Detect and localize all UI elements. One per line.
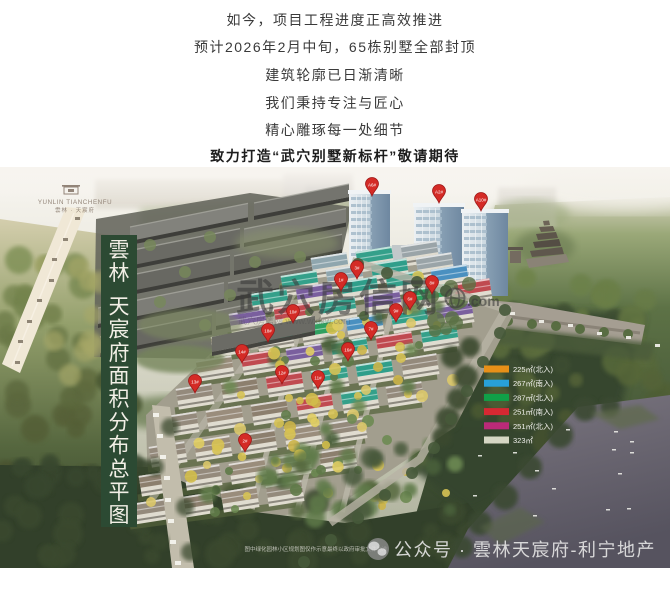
svg-text:3#: 3# (354, 266, 360, 271)
svg-text:12#: 12# (278, 371, 286, 376)
svg-text:287㎡(北入): 287㎡(北入) (513, 393, 554, 402)
svg-text:分: 分 (109, 410, 130, 434)
svg-text:6#: 6# (407, 297, 413, 302)
svg-text:雲林 · 天宸府: 雲林 · 天宸府 (55, 206, 95, 214)
svg-text:总: 总 (109, 457, 130, 481)
svg-text:.com: .com (467, 293, 500, 309)
svg-text:林: 林 (109, 261, 130, 285)
svg-text:10#: 10# (289, 310, 297, 315)
svg-text:323㎡: 323㎡ (513, 436, 534, 445)
svg-text:8#: 8# (429, 281, 435, 286)
svg-text:府: 府 (109, 341, 130, 365)
svg-text:267㎡(南入): 267㎡(南入) (513, 378, 554, 388)
svg-text:雲: 雲 (109, 238, 130, 262)
svg-text:布: 布 (109, 434, 130, 458)
svg-text:面: 面 (109, 364, 130, 388)
svg-text:14#: 14# (238, 350, 246, 355)
svg-text:1#: 1# (338, 278, 344, 283)
svg-text:18#: 18# (264, 329, 272, 334)
svg-text:2#: 2# (242, 439, 248, 444)
svg-text:天: 天 (109, 294, 130, 318)
svg-text:251㎡(北入): 251㎡(北入) (513, 422, 554, 431)
svg-text:7#: 7# (368, 327, 374, 332)
svg-text:A6#: A6# (368, 183, 377, 188)
svg-text:16#: 16# (344, 348, 352, 353)
svg-text:平: 平 (109, 480, 130, 504)
svg-text:公众号 · 雲林天宸府-利宁地产: 公众号 · 雲林天宸府-利宁地产 (394, 540, 656, 560)
svg-text:251㎡(南入): 251㎡(南入) (513, 407, 554, 417)
svg-text:宸: 宸 (109, 318, 130, 342)
svg-text:11#: 11# (314, 376, 322, 381)
svg-text:YUNLIN TIANCHENFU: YUNLIN TIANCHENFU (38, 199, 112, 206)
svg-text:9#: 9# (393, 309, 399, 314)
svg-text:A2#: A2# (435, 190, 444, 195)
svg-text:A10#: A10# (476, 198, 487, 203)
svg-text:图中绿化园林小区规划图仅作示意最终以政府审批文件为准: 图中绿化园林小区规划图仅作示意最终以政府审批文件为准 (244, 545, 388, 553)
svg-text:积: 积 (109, 387, 130, 411)
svg-text:225㎡(北入): 225㎡(北入) (513, 365, 554, 374)
svg-text:13#: 13# (191, 380, 199, 385)
svg-text:图: 图 (109, 503, 130, 527)
